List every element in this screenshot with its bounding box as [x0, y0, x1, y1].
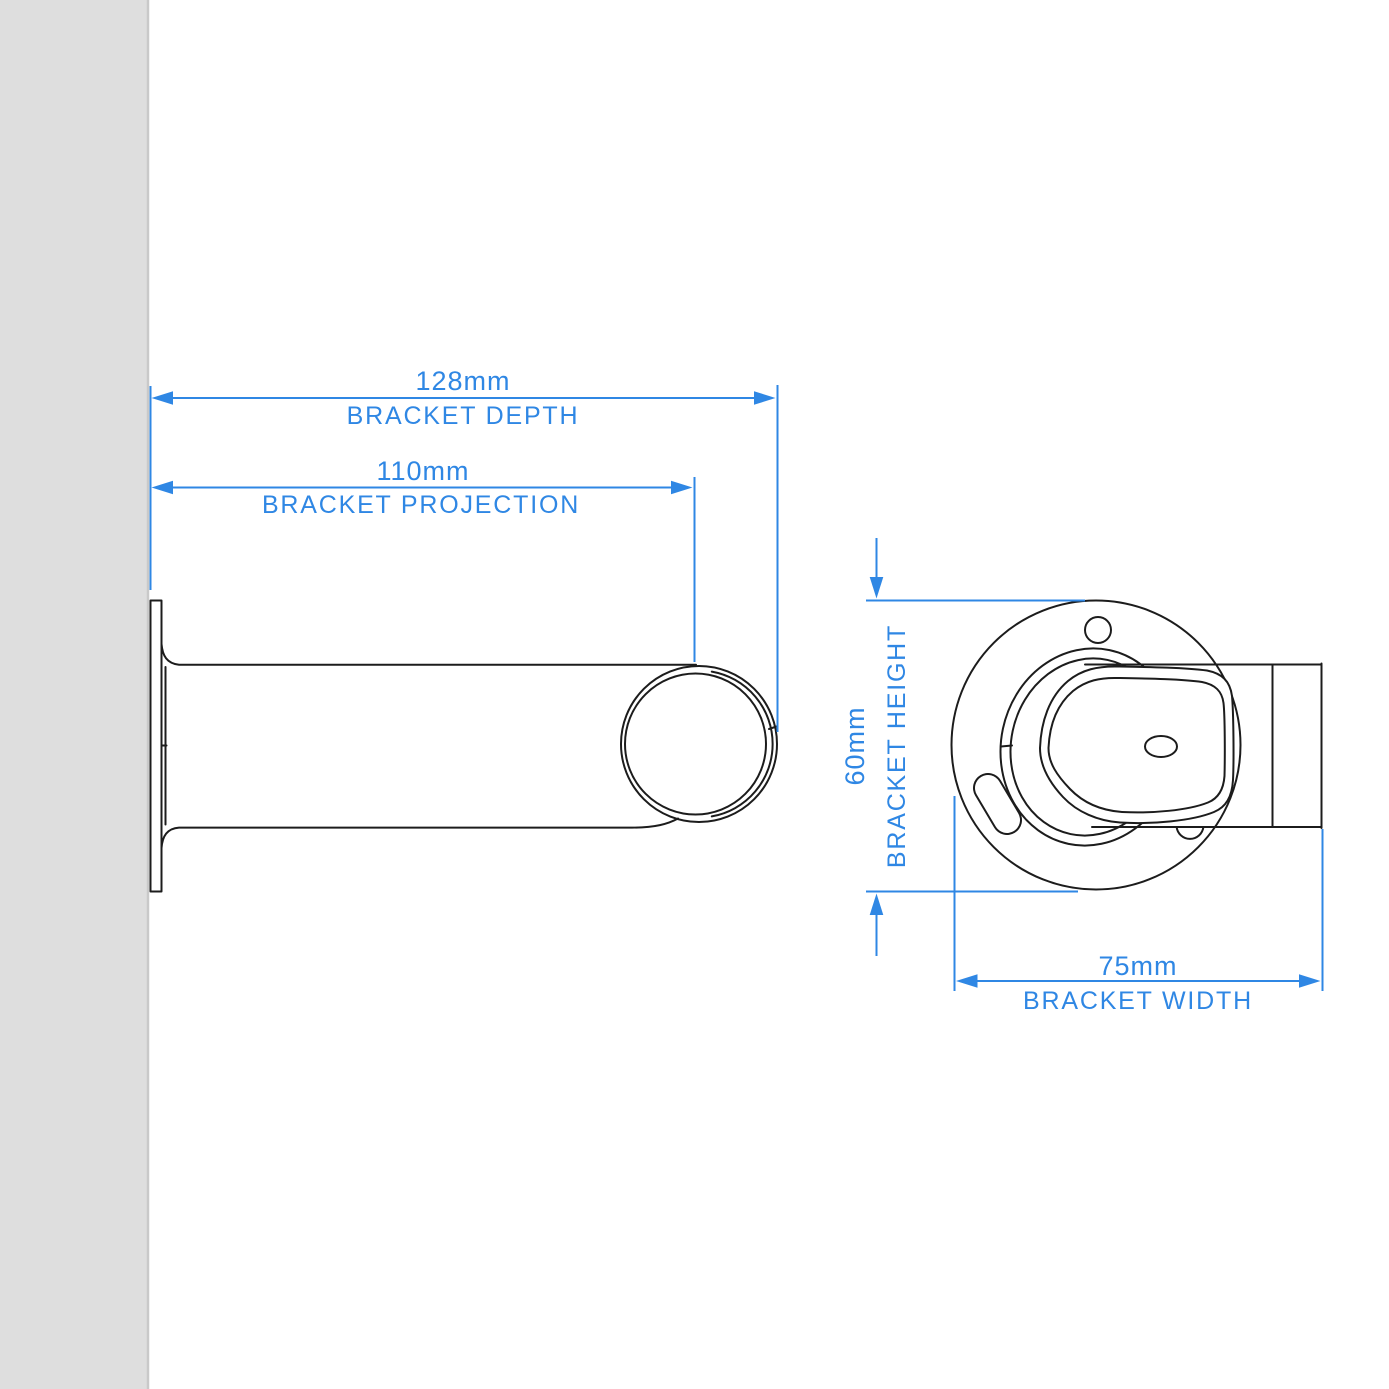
pivot-hole: [1145, 736, 1177, 757]
dim-projection-arrow-right: [671, 481, 693, 495]
arm-top-line: [162, 644, 697, 665]
dim-width-arrow-left: [956, 974, 978, 988]
side-view: [151, 601, 778, 892]
dim-depth-value: 128mm: [415, 366, 510, 396]
bracket-dimension-drawing: 128mm BRACKET DEPTH 110mm BRACKET PROJEC…: [0, 0, 1389, 1389]
dim-height-arrow-top: [870, 577, 884, 599]
side-view-dimensions: 128mm BRACKET DEPTH 110mm BRACKET PROJEC…: [151, 366, 778, 732]
screw-slot: [988, 788, 1007, 820]
dim-width-value: 75mm: [1098, 951, 1177, 981]
technical-drawing-page: 128mm BRACKET DEPTH 110mm BRACKET PROJEC…: [0, 0, 1389, 1389]
ring-inner-circle: [625, 674, 766, 815]
arm-bottom-line: [162, 819, 679, 849]
dim-width-arrow-right: [1299, 974, 1321, 988]
saddle-outer: [1040, 666, 1234, 823]
wall: [0, 0, 147, 1389]
dim-height-label: BRACKET HEIGHT: [883, 624, 911, 868]
front-view: [952, 601, 1322, 890]
boss-tick: [1001, 746, 1012, 747]
dim-projection-arrow-left: [152, 481, 174, 495]
dim-depth-arrow-right: [754, 391, 776, 405]
wall-plate: [151, 601, 162, 892]
dim-projection-value: 110mm: [376, 456, 469, 486]
dim-height-arrow-bottom: [870, 894, 884, 916]
dim-height-value: 60mm: [840, 706, 870, 785]
dim-projection-label: BRACKET PROJECTION: [262, 491, 580, 519]
dim-width-label: BRACKET WIDTH: [1023, 987, 1253, 1015]
dim-depth-label: BRACKET DEPTH: [347, 402, 580, 430]
ring-face-arc: [712, 672, 773, 817]
screw-hole-top: [1085, 617, 1111, 643]
ring-outer-circle: [621, 666, 777, 822]
dim-depth-arrow-left: [152, 391, 174, 405]
